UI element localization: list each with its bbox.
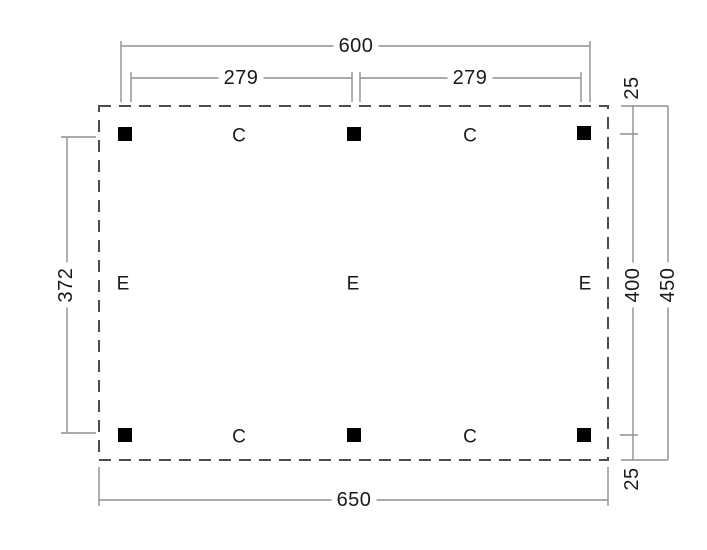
dim-label-top-total: 600	[334, 36, 379, 56]
bay-label-e-right: E	[579, 275, 592, 294]
post-top-right	[577, 126, 591, 140]
bay-label-c-bottom-right: C	[463, 428, 477, 447]
bay-label-c-bottom-left: C	[232, 428, 246, 447]
dim-label-top-bay-right: 279	[448, 68, 493, 88]
bay-label-c-top-right: C	[463, 127, 477, 146]
dim-label-right-post-span: 400	[623, 263, 643, 308]
post-bottom-right	[577, 428, 591, 442]
floor-plan-canvas: 600 279 279 372 25 400 450 25 650 C C E …	[0, 0, 707, 550]
dim-label-right-bottom-offset: 25	[622, 462, 642, 495]
bay-label-e-middle: E	[347, 275, 360, 294]
post-bottom-middle	[347, 428, 361, 442]
post-top-middle	[347, 127, 361, 141]
dim-label-left-post-span: 372	[56, 263, 76, 308]
bay-label-c-top-left: C	[232, 127, 246, 146]
dim-label-right-top-offset: 25	[622, 71, 642, 104]
post-bottom-left	[118, 428, 132, 442]
dim-label-right-total: 450	[658, 263, 678, 308]
post-top-left	[118, 127, 132, 141]
dim-label-bottom-total: 650	[332, 490, 377, 510]
dim-label-top-bay-left: 279	[219, 68, 264, 88]
bay-label-e-left: E	[117, 275, 130, 294]
